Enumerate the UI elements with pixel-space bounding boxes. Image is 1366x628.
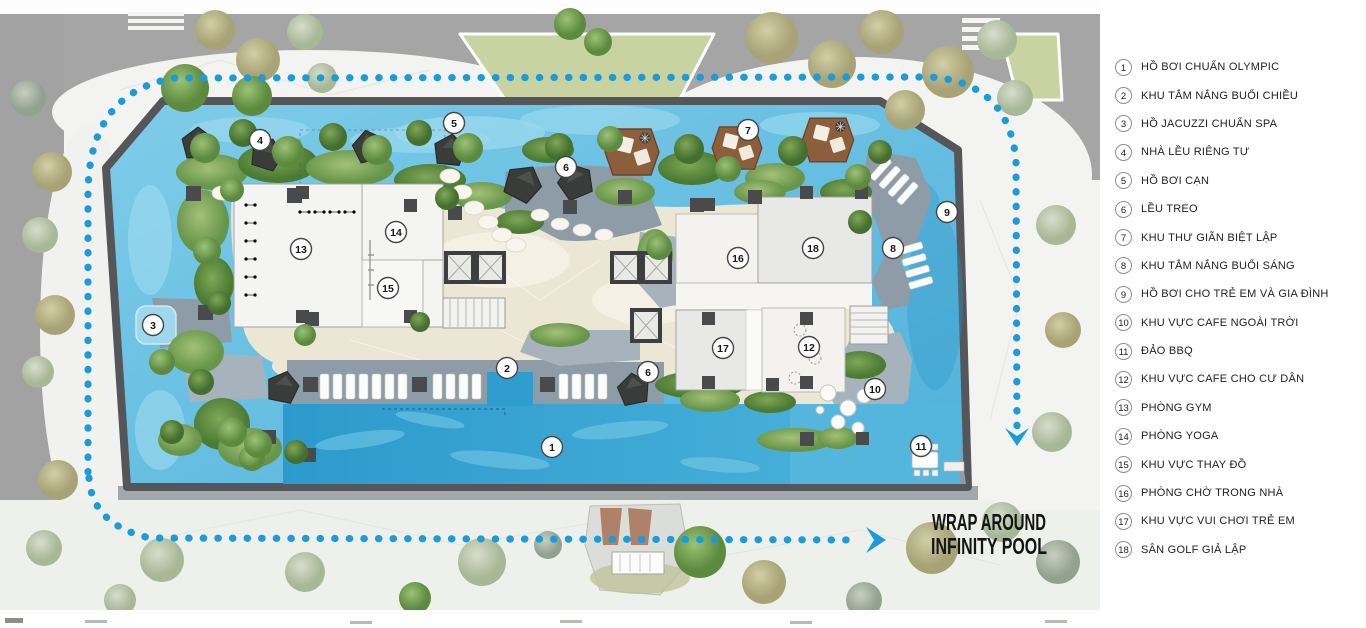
legend-item: 18 SÂN GOLF GIẢ LẬP [1100, 536, 1366, 564]
plan-marker-4: 4 [250, 130, 271, 151]
plan-marker-6: 6 [556, 157, 577, 178]
plan-marker-18: 18 [803, 238, 824, 259]
site-plan: WRAP AROUND INFINITY POOL 12345667891011… [0, 0, 1100, 628]
wrap-around-label-line2: INFINITY POOL [931, 533, 1047, 559]
legend-item-label: KHU VỰC VUI CHƠI TRẺ EM [1141, 515, 1295, 527]
indoor-lounge-golf-building [676, 186, 872, 392]
plan-marker-11: 11 [911, 436, 932, 457]
svg-text:18: 18 [807, 243, 819, 255]
legend-item: 5 HỒ BƠI CẠN [1100, 167, 1366, 195]
gym-yoga-building [234, 184, 443, 327]
legend-item: 7 KHU THƯ GIÃN BIỆT LẬP [1100, 223, 1366, 251]
svg-text:12: 12 [803, 342, 815, 354]
legend-item-label: HỒ JACUZZI CHUẨN SPA [1141, 118, 1277, 130]
svg-text:15: 15 [382, 283, 394, 295]
legend-number-badge: 2 [1115, 87, 1132, 104]
plan-marker-16: 16 [728, 248, 749, 269]
legend-item: 4 NHÀ LỀU RIÊNG TƯ [1100, 138, 1366, 166]
legend-number-badge: 4 [1115, 144, 1132, 161]
legend-item-label: KHU VỰC CAFE CHO CƯ DÂN [1141, 373, 1304, 385]
legend-item-label: NHÀ LỀU RIÊNG TƯ [1141, 146, 1250, 158]
sunbathing-loungers-afternoon [303, 374, 607, 399]
plan-marker-12: 12 [799, 337, 820, 358]
svg-text:7: 7 [745, 125, 751, 137]
legend-number-badge: 8 [1115, 257, 1132, 274]
legend-item: 9 HỒ BƠI CHO TRẺ EM VÀ GIA ĐÌNH [1100, 280, 1366, 308]
legend-item: 14 PHÒNG YOGA [1100, 422, 1366, 450]
svg-text:6: 6 [645, 367, 651, 379]
legend-number-badge: 5 [1115, 172, 1132, 189]
legend-item-label: HỒ BƠI CẠN [1141, 175, 1209, 187]
legend-item: 10 KHU VỰC CAFE NGOÀI TRỜI [1100, 309, 1366, 337]
page: WRAP AROUND INFINITY POOL 12345667891011… [0, 0, 1366, 628]
legend-item: 8 KHU TẮM NẮNG BUỔI SÁNG [1100, 252, 1366, 280]
legend-item-label: KHU VỰC CAFE NGOÀI TRỜI [1141, 317, 1299, 329]
legend-number-badge: 17 [1115, 513, 1132, 530]
crosswalk-top-left [128, 12, 184, 30]
legend-number-badge: 10 [1115, 314, 1132, 331]
legend-item: 2 KHU TẮM NẮNG BUỔI CHIỀU [1100, 81, 1366, 109]
plan-marker-13: 13 [291, 239, 312, 260]
svg-text:2: 2 [504, 363, 510, 375]
plan-marker-7: 7 [738, 120, 759, 141]
svg-text:16: 16 [732, 253, 744, 265]
legend-number-badge: 16 [1115, 485, 1132, 502]
legend-item-label: KHU TẮM NẮNG BUỔI CHIỀU [1141, 90, 1298, 102]
legend-item: 6 LỀU TREO [1100, 195, 1366, 223]
legend-item: 3 HỒ JACUZZI CHUẨN SPA [1100, 110, 1366, 138]
legend-item: 1 HỒ BƠI CHUẨN OLYMPIC [1100, 53, 1366, 81]
svg-text:6: 6 [563, 162, 569, 174]
plan-marker-8: 8 [883, 238, 904, 259]
legend-number-badge: 13 [1115, 399, 1132, 416]
plan-marker-17: 17 [713, 338, 734, 359]
legend-item-label: HỒ BƠI CHO TRẺ EM VÀ GIA ĐÌNH [1141, 288, 1329, 300]
legend-item-label: KHU TẮM NẮNG BUỔI SÁNG [1141, 260, 1295, 272]
svg-text:1: 1 [549, 442, 555, 454]
legend-item: 15 KHU VỰC THAY ĐỒ [1100, 450, 1366, 478]
plan-marker-3: 3 [143, 315, 164, 336]
legend-item-label: KHU VỰC THAY ĐỒ [1141, 459, 1246, 471]
legend-item-label: KHU THƯ GIÃN BIỆT LẬP [1141, 232, 1278, 244]
legend-item-label: LỀU TREO [1141, 203, 1198, 215]
svg-text:10: 10 [869, 384, 881, 396]
legend-item: 11 ĐẢO BBQ [1100, 337, 1366, 365]
legend-number-badge: 12 [1115, 371, 1132, 388]
svg-text:9: 9 [944, 207, 950, 219]
svg-text:13: 13 [295, 244, 307, 256]
legend-item-label: PHÒNG GYM [1141, 402, 1212, 414]
legend-item-label: ĐẢO BBQ [1141, 345, 1193, 357]
legend-number-badge: 14 [1115, 428, 1132, 445]
svg-text:4: 4 [257, 135, 263, 147]
legend-item-label: SÂN GOLF GIẢ LẬP [1141, 544, 1246, 556]
legend-number-badge: 1 [1115, 59, 1132, 76]
wrap-around-label: WRAP AROUND INFINITY POOL [931, 509, 1047, 559]
plan-marker-15: 15 [378, 278, 399, 299]
plan-marker-5: 5 [444, 113, 465, 134]
legend-item: 16 PHÒNG CHỜ TRONG NHÀ [1100, 479, 1366, 507]
legend-number-badge: 9 [1115, 286, 1132, 303]
svg-text:3: 3 [150, 320, 156, 332]
legend-item-label: PHÒNG CHỜ TRONG NHÀ [1141, 487, 1283, 499]
plan-marker-10: 10 [865, 379, 886, 400]
plan-marker-6: 6 [638, 362, 659, 383]
legend-item-label: HỒ BƠI CHUẨN OLYMPIC [1141, 61, 1279, 73]
legend-number-badge: 11 [1115, 343, 1132, 360]
legend-item-label: PHÒNG YOGA [1141, 430, 1218, 442]
bottom-edge-marks [0, 610, 1100, 628]
legend-number-badge: 15 [1115, 456, 1132, 473]
legend-item: 17 KHU VỰC VUI CHƠI TRẺ EM [1100, 507, 1366, 535]
svg-text:14: 14 [390, 227, 402, 239]
svg-text:5: 5 [451, 118, 457, 130]
svg-text:17: 17 [717, 343, 729, 355]
plan-marker-2: 2 [497, 358, 518, 379]
legend-panel: 1 HỒ BƠI CHUẨN OLYMPIC 2 KHU TẮM NẮNG BU… [1100, 0, 1366, 628]
svg-text:11: 11 [915, 441, 926, 453]
legend-item: 13 PHÒNG GYM [1100, 394, 1366, 422]
legend-number-badge: 3 [1115, 115, 1132, 132]
legend-number-badge: 18 [1115, 541, 1132, 558]
plan-marker-1: 1 [542, 437, 563, 458]
legend-number-badge: 6 [1115, 201, 1132, 218]
svg-text:8: 8 [890, 243, 896, 255]
legend-item: 12 KHU VỰC CAFE CHO CƯ DÂN [1100, 365, 1366, 393]
legend-number-badge: 7 [1115, 229, 1132, 246]
plan-marker-9: 9 [937, 202, 958, 223]
wrap-around-label-line1: WRAP AROUND [932, 509, 1046, 535]
plan-marker-14: 14 [386, 222, 407, 243]
